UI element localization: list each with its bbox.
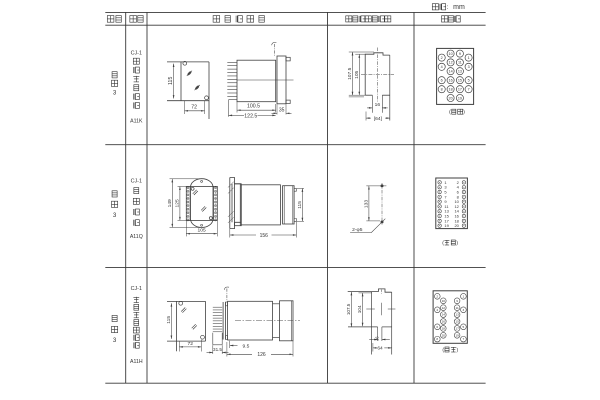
svg-text:7: 7: [468, 88, 470, 92]
svg-text:19: 19: [458, 96, 462, 100]
svg-text:105: 105: [354, 70, 360, 78]
svg-text:133: 133: [363, 200, 369, 208]
svg-text:8: 8: [436, 337, 438, 341]
svg-text:149: 149: [167, 199, 173, 207]
svg-text:16: 16: [442, 320, 446, 324]
svg-text:2-φ5: 2-φ5: [352, 227, 363, 233]
svg-text:19: 19: [444, 223, 449, 228]
svg-text:(: (: [449, 110, 451, 116]
svg-text:CJ-1: CJ-1: [131, 178, 142, 184]
svg-text:A11K: A11K: [130, 118, 143, 124]
svg-text:CJ-1: CJ-1: [131, 50, 142, 56]
svg-text:3: 3: [113, 337, 117, 344]
svg-text:115: 115: [297, 201, 303, 209]
svg-text:3: 3: [468, 65, 470, 69]
svg-text:20: 20: [442, 333, 446, 337]
svg-text:20: 20: [454, 223, 459, 228]
svg-text:): ): [463, 110, 465, 116]
svg-text:16: 16: [374, 336, 379, 341]
svg-text:16: 16: [375, 102, 381, 108]
svg-text:CJ-1: CJ-1: [131, 286, 142, 292]
svg-text:11: 11: [458, 61, 462, 65]
svg-text:12: 12: [449, 61, 453, 65]
svg-text:104: 104: [357, 305, 362, 313]
svg-text:[64]: [64]: [374, 116, 383, 122]
svg-text:9.5: 9.5: [243, 343, 250, 349]
svg-text:A11H: A11H: [130, 359, 143, 365]
svg-text:10: 10: [449, 52, 453, 56]
svg-text:7: 7: [463, 337, 465, 341]
svg-text:5: 5: [463, 325, 465, 329]
svg-text:4: 4: [441, 65, 443, 69]
svg-text:mm: mm: [453, 4, 465, 11]
svg-text:122.5: 122.5: [244, 113, 257, 119]
svg-text:125: 125: [174, 199, 180, 207]
svg-text:): ): [456, 347, 458, 353]
svg-text:A11Q: A11Q: [130, 234, 143, 240]
svg-text:2: 2: [436, 294, 438, 298]
svg-text:15: 15: [455, 320, 459, 324]
svg-text:4: 4: [436, 308, 438, 312]
svg-text:18: 18: [449, 88, 453, 92]
svg-text:115: 115: [166, 316, 172, 324]
svg-text:1: 1: [468, 56, 470, 60]
svg-text:5: 5: [468, 79, 470, 83]
svg-text:17: 17: [455, 327, 459, 331]
svg-text:105: 105: [198, 228, 206, 234]
svg-text:2: 2: [441, 56, 443, 60]
svg-text:156: 156: [260, 233, 269, 239]
svg-text:9: 9: [456, 299, 458, 303]
svg-text::: :: [447, 4, 449, 11]
svg-text:19: 19: [455, 333, 459, 337]
svg-text:3: 3: [113, 212, 117, 219]
svg-text:14: 14: [442, 313, 446, 317]
svg-text:72: 72: [187, 341, 193, 347]
svg-text:31.5: 31.5: [213, 347, 222, 352]
svg-text:(: (: [442, 240, 444, 246]
svg-text:15: 15: [458, 79, 462, 83]
svg-text:72: 72: [191, 105, 197, 111]
svg-text:107.5: 107.5: [346, 303, 351, 315]
svg-text:35: 35: [279, 108, 285, 114]
svg-text:8: 8: [441, 88, 443, 92]
svg-text:100.5: 100.5: [247, 103, 260, 109]
svg-text:126: 126: [257, 352, 266, 358]
svg-text:3: 3: [113, 90, 117, 97]
svg-text:14: 14: [449, 70, 453, 74]
svg-text:1: 1: [463, 294, 465, 298]
svg-text:17: 17: [458, 88, 462, 92]
svg-text:6: 6: [441, 79, 443, 83]
svg-text:12: 12: [442, 306, 446, 310]
svg-text:20: 20: [449, 96, 453, 100]
svg-text:11: 11: [455, 306, 458, 310]
svg-text:6: 6: [436, 325, 438, 329]
svg-text:64: 64: [377, 346, 383, 352]
svg-text:13: 13: [455, 313, 459, 317]
svg-text:16: 16: [449, 79, 453, 83]
svg-text:115: 115: [168, 77, 174, 85]
svg-text:107.5: 107.5: [347, 67, 353, 80]
svg-text:3: 3: [463, 308, 465, 312]
svg-text:13: 13: [458, 70, 462, 74]
svg-text:(: (: [442, 347, 444, 353]
svg-text:9: 9: [459, 52, 461, 56]
svg-text:): ): [456, 240, 458, 246]
svg-text:18: 18: [442, 327, 446, 331]
svg-text:10: 10: [442, 299, 446, 303]
